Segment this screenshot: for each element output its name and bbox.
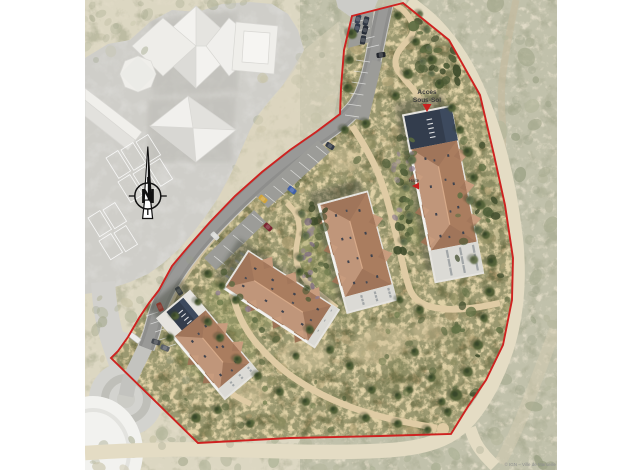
svg-text:N: N [141,186,155,208]
svg-text:© IGN – Ville de Marseille: © IGN – Ville de Marseille [504,461,556,467]
svg-text:Halte: Halte [409,178,420,183]
svg-text:Accès: Accès [417,89,437,96]
svg-text:Sous-Sol: Sous-Sol [413,97,441,104]
